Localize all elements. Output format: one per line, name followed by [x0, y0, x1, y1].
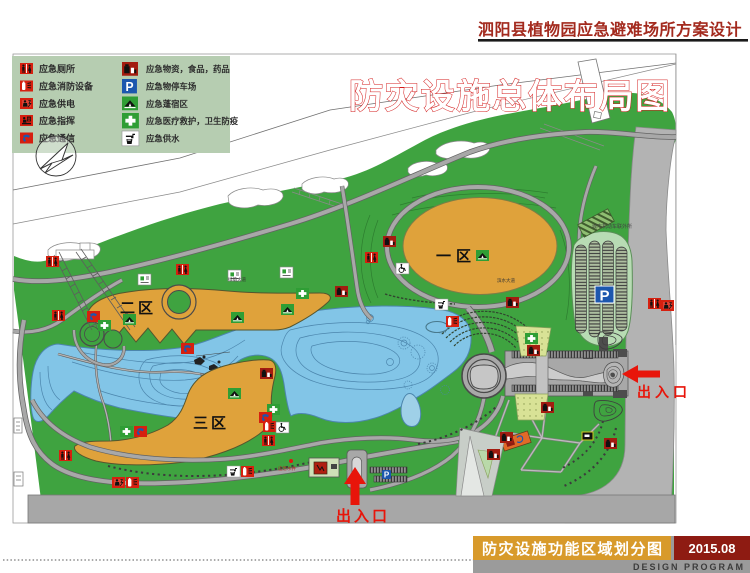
svg-text:2015.08: 2015.08	[689, 541, 736, 556]
svg-text:二区: 二区	[120, 300, 156, 317]
svg-text:应急消防设备: 应急消防设备	[39, 81, 94, 92]
svg-text:绿荫大道: 绿荫大道	[228, 276, 246, 283]
svg-text:泗阳县植物园应急避难场所方案设计: 泗阳县植物园应急避难场所方案设计	[478, 20, 742, 39]
svg-text:DESIGN PROGRAM: DESIGN PROGRAM	[633, 562, 745, 572]
svg-text:应急水井: 应急水井	[278, 465, 296, 472]
svg-text:城市机动车联外所: 城市机动车联外所	[592, 223, 632, 230]
svg-text:应急供电: 应急供电	[39, 98, 75, 109]
svg-text:防灾设施功能区域划分图: 防灾设施功能区域划分图	[482, 540, 664, 558]
svg-text:出入口: 出入口	[637, 384, 691, 400]
svg-text:应急医疗救护，卫生防疫: 应急医疗救护，卫生防疫	[146, 116, 239, 126]
svg-text:应急厕所: 应急厕所	[39, 63, 75, 74]
svg-text:应急指挥: 应急指挥	[39, 115, 75, 126]
svg-text:滨水大道: 滨水大道	[497, 277, 515, 284]
svg-text:应急蓬宿区: 应急蓬宿区	[146, 99, 188, 109]
svg-text:一区: 一区	[436, 248, 476, 265]
svg-text:应急物停车场: 应急物停车场	[146, 82, 197, 92]
svg-text:出入口: 出入口	[336, 507, 390, 525]
svg-text:防灾设施总体布局图: 防灾设施总体布局图	[349, 77, 671, 116]
svg-text:应急物资，食品，药品: 应急物资，食品，药品	[146, 64, 230, 74]
svg-text:P: P	[384, 471, 390, 480]
svg-text:应急供水: 应急供水	[146, 134, 180, 144]
svg-text:三区: 三区	[193, 415, 229, 432]
svg-text:P: P	[599, 288, 609, 305]
